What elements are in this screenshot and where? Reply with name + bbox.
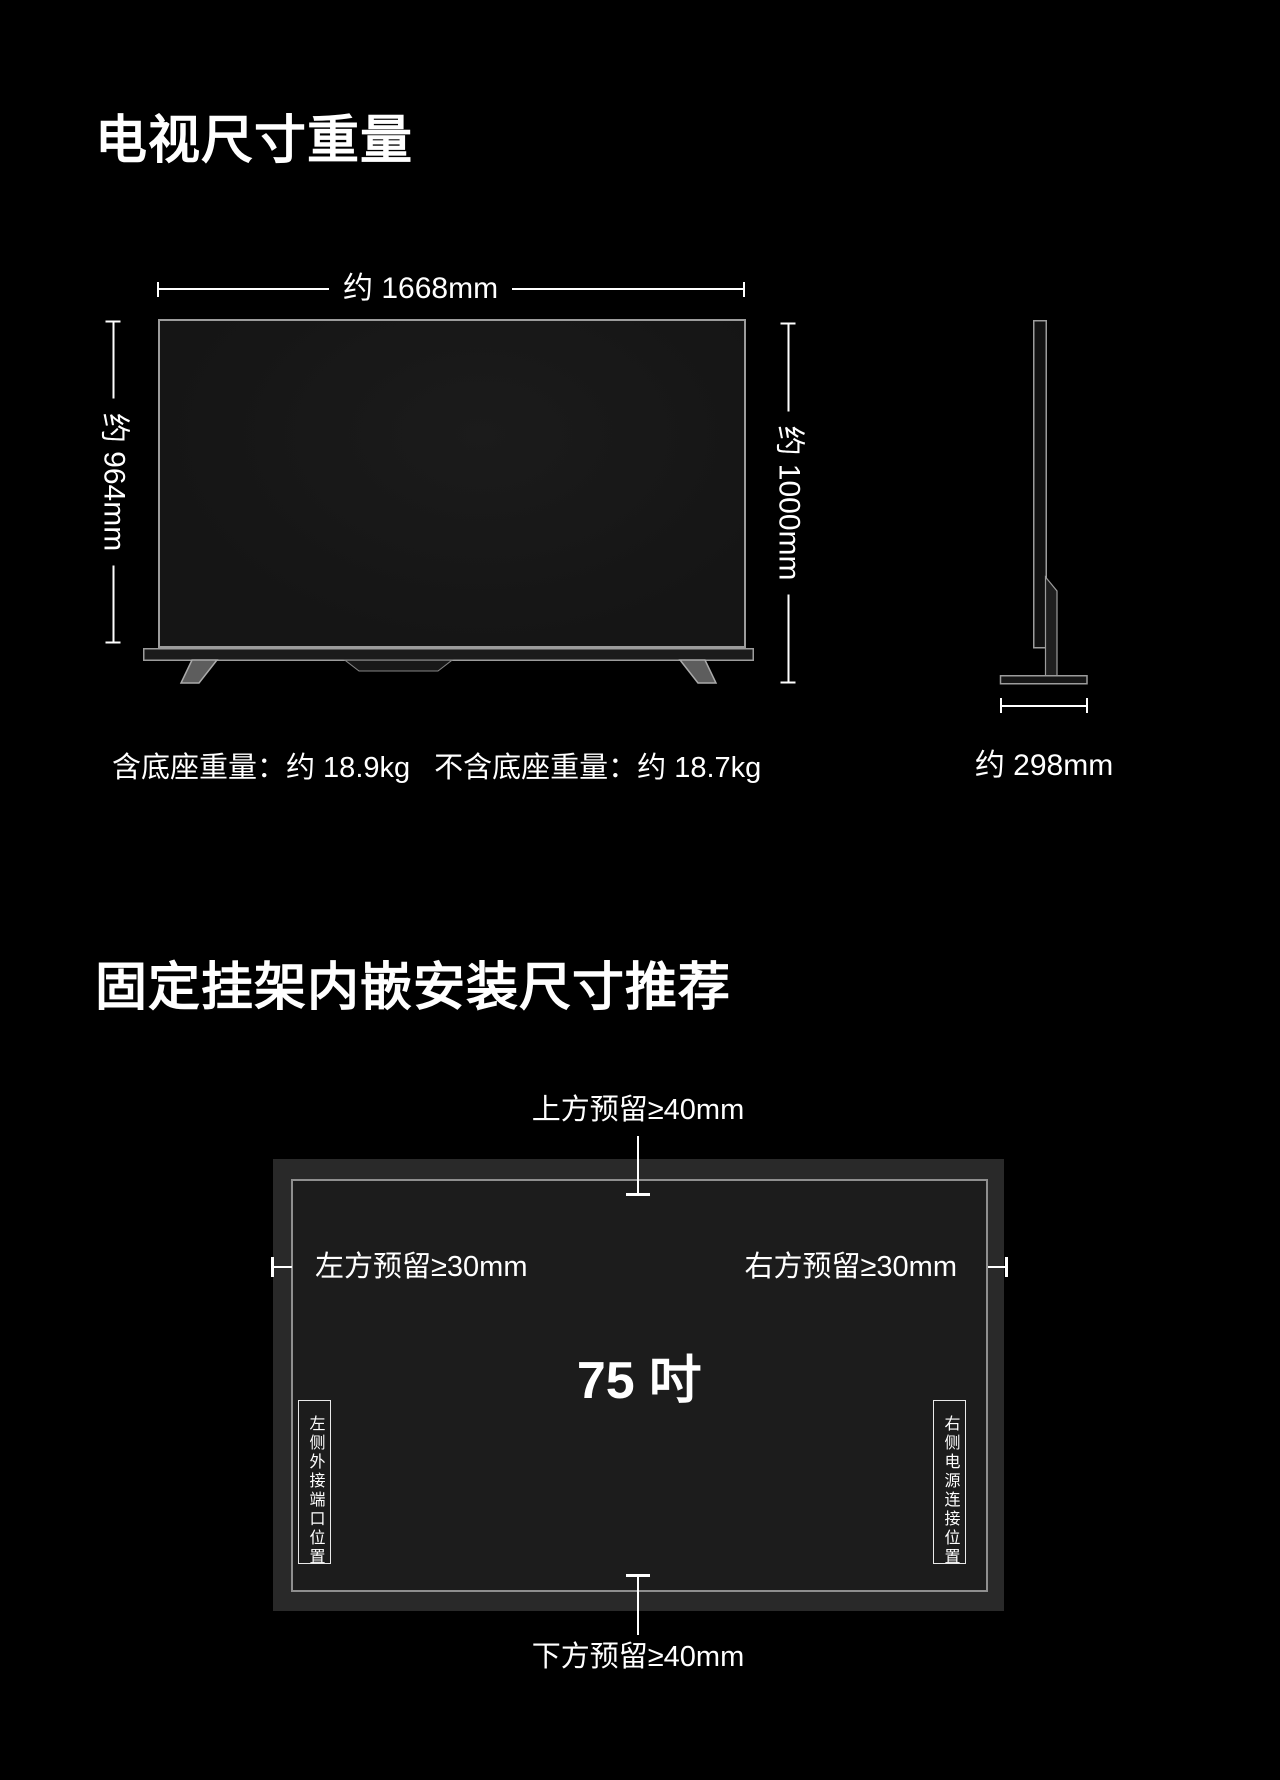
dimension-total-height: 约 1000mm: [774, 323, 804, 684]
left-clearance-tick: [273, 1266, 292, 1268]
dimension-cap: [781, 682, 796, 684]
depth-dimension-label: 约 298mm: [944, 740, 1144, 784]
tv-side-stand-neck: [1046, 577, 1058, 676]
top-clearance-label: 上方预留≥40mm: [438, 1093, 838, 1127]
section-title-mount-recommendation: 固定挂架内嵌安装尺寸推荐: [95, 945, 731, 1020]
tv-stand-front: [140, 645, 760, 687]
tv-bottom-bar: [144, 649, 754, 661]
left-clearance-tick-cap: [271, 1257, 274, 1277]
dimension-panel-height: 约 964mm: [99, 321, 129, 644]
total-height-label: 约 1000mm: [774, 411, 804, 594]
top-clearance-tick-cap: [626, 1193, 650, 1196]
weight-info-row: 含底座重量：约 18.9kg 不含底座重量：约 18.7kg: [112, 744, 761, 786]
tv-right-foot: [680, 660, 716, 683]
dimension-cap: [106, 642, 121, 644]
dimension-line: [512, 288, 743, 290]
left-clearance-label: 左方预留≥30mm: [315, 1250, 528, 1284]
tv-spec-infographic: 电视尺寸重量 约 1668mm 约 964mm 约 1000mm: [0, 0, 1280, 1780]
top-clearance-tick: [637, 1136, 639, 1195]
dimension-depth: [1000, 698, 1088, 713]
tv-left-foot: [181, 660, 217, 683]
tv-front-panel: [158, 319, 746, 648]
dimension-line: [788, 325, 790, 412]
tv-side-base: [1001, 676, 1088, 684]
weight-with-stand: 含底座重量：约 18.9kg: [112, 744, 410, 786]
bottom-clearance-label: 下方预留≥40mm: [438, 1640, 838, 1674]
dimension-cap: [743, 282, 745, 297]
tv-side-view: [995, 315, 1095, 687]
left-port-label-box: 左侧外接端口位置: [298, 1400, 331, 1564]
dimension-line: [113, 565, 115, 641]
dimension-line: [788, 595, 790, 682]
right-power-label-box: 右侧电源连接位置: [933, 1400, 966, 1564]
dimension-cap: [1086, 698, 1088, 713]
width-dimension-label: 约 1668mm: [329, 274, 512, 304]
tv-side-slab: [1034, 321, 1047, 648]
weight-without-stand: 不含底座重量：约 18.7kg: [434, 744, 761, 786]
dimension-width: 约 1668mm: [157, 274, 745, 304]
tv-center-notch: [345, 660, 452, 671]
section-title-size-weight: 电视尺寸重量: [95, 98, 413, 173]
left-port-label: 左侧外接端口位置: [307, 1415, 323, 1567]
right-clearance-label: 右方预留≥30mm: [657, 1250, 957, 1284]
panel-height-label: 约 964mm: [99, 399, 129, 565]
dimension-line: [1002, 705, 1086, 707]
bottom-clearance-tick: [637, 1576, 639, 1635]
right-clearance-tick-cap: [1005, 1257, 1008, 1277]
dimension-line: [113, 323, 115, 399]
right-power-label: 右侧电源连接位置: [942, 1415, 958, 1567]
bottom-clearance-tick-cap: [626, 1574, 650, 1577]
screen-size-label: 75 吋: [489, 1338, 789, 1413]
dimension-line: [159, 288, 329, 290]
